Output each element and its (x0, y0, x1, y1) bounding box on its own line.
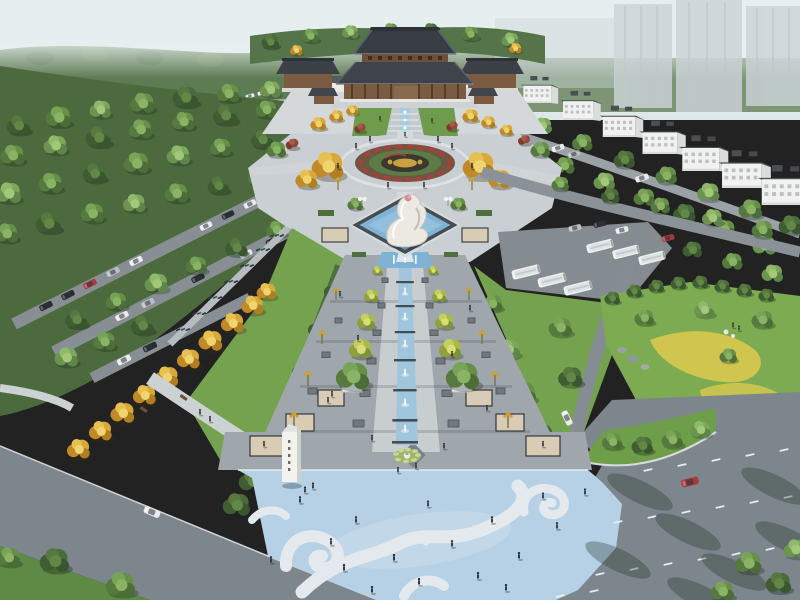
rock (641, 364, 650, 370)
temple-wing-right (460, 58, 524, 92)
scene-canvas (0, 0, 800, 600)
rock (617, 347, 627, 353)
bench (139, 406, 147, 413)
lower-roof (336, 62, 474, 84)
rendered-image (0, 0, 800, 600)
residential-building (639, 121, 687, 156)
stele-monument (282, 424, 302, 489)
gold-emblem (393, 159, 417, 168)
rock (627, 356, 639, 363)
temple-wing-left (276, 58, 340, 92)
residential-building (679, 135, 730, 172)
car (661, 234, 675, 243)
